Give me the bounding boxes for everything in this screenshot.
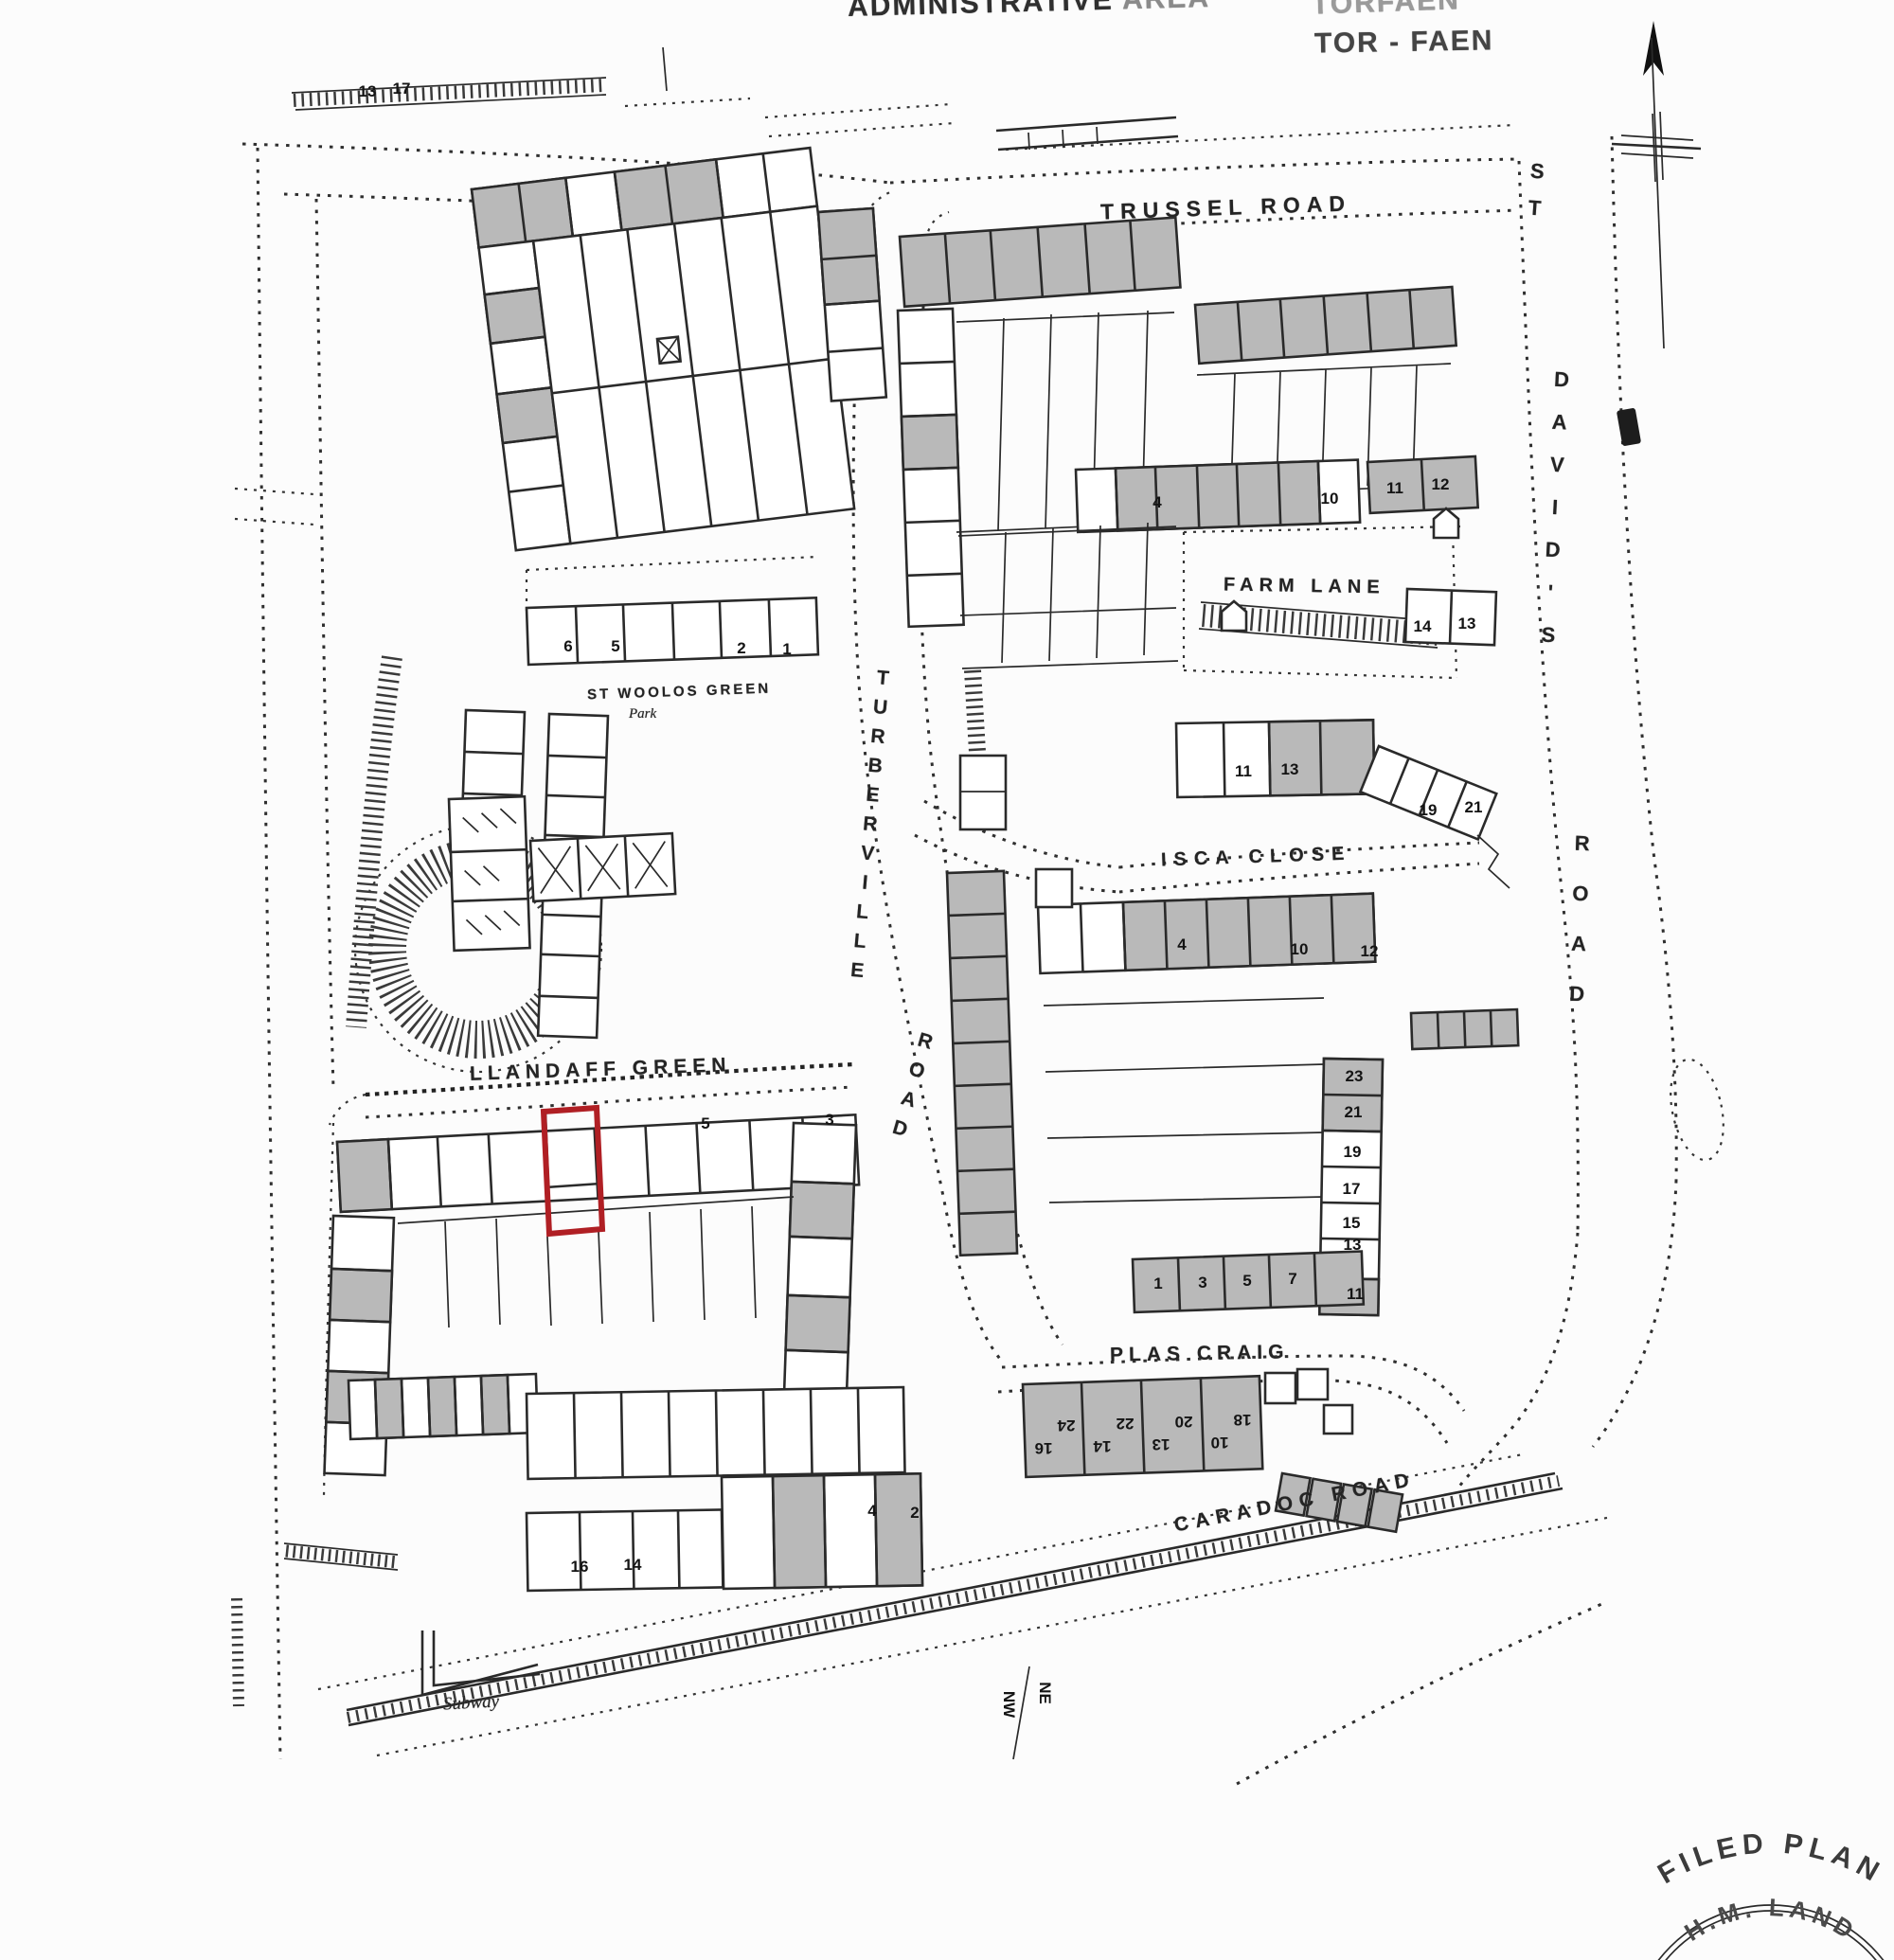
plot-number: 21 — [1345, 1103, 1363, 1121]
plot-number: 11 — [1235, 762, 1252, 780]
county-name-welsh-bottom: TOR - FAEN — [1314, 25, 1494, 60]
plot-number: 5 — [1242, 1272, 1251, 1290]
plot-number: 13 — [359, 82, 377, 100]
marker-ne: NE — [1036, 1682, 1054, 1704]
label-st-davids-1: ST — [1520, 158, 1549, 234]
plot-number: 19 — [1344, 1143, 1362, 1161]
house-icon — [1434, 508, 1458, 538]
plot-number: 13 — [1281, 760, 1299, 778]
label-park: Park — [629, 706, 656, 722]
ring-centre-block — [449, 796, 530, 951]
plot-number: 24 — [1057, 1417, 1075, 1434]
plot-number: 23 — [1346, 1067, 1364, 1085]
stamp-hm-land: H.M. LAND — [1679, 1893, 1862, 1947]
plot-number: 13 — [1152, 1435, 1170, 1453]
plot-number: 12 — [1432, 475, 1450, 493]
plot-number: 3 — [1198, 1274, 1206, 1292]
plot-number: 4 — [1177, 935, 1187, 953]
plot-number: 2 — [910, 1504, 919, 1522]
plot-number: 11 — [1347, 1285, 1364, 1303]
plot-number: 16 — [1035, 1439, 1053, 1457]
llandaff-right-col — [784, 1123, 856, 1409]
turberville-strip — [947, 871, 1017, 1256]
plot-number: 10 — [1211, 1434, 1229, 1452]
sheet-edge-marker: NE NW — [1000, 1666, 1054, 1759]
label-plas-craig: PLAS CRAIG — [1110, 1341, 1290, 1366]
plot-number: 14 — [624, 1556, 642, 1574]
plot-number: 17 — [1343, 1180, 1361, 1198]
plot-number: 11 — [1386, 479, 1403, 497]
garage-cluster — [530, 833, 675, 901]
plot-number: 16 — [571, 1558, 589, 1576]
plot-number: 10 — [1291, 940, 1309, 958]
label-farm-lane: FARM LANE — [1224, 575, 1385, 599]
plot-number: 1 — [782, 640, 791, 658]
stamp-filed-plan: FILED PLAN — [1653, 1827, 1889, 1890]
plot-number: 20 — [1175, 1413, 1193, 1431]
plot-number: 4 — [867, 1502, 877, 1520]
terrace-blocks — [325, 148, 1642, 1695]
plot-number: 5 — [611, 637, 619, 655]
north-arrow-icon — [1612, 21, 1701, 348]
plot-number: 6 — [563, 637, 572, 655]
plot-number: 12 — [1361, 942, 1379, 960]
plot-number: 18 — [1234, 1411, 1252, 1429]
plot-number: 19 — [1420, 801, 1438, 819]
small-structure — [657, 337, 681, 364]
building-solid — [1617, 408, 1641, 447]
plot-number: 10 — [1321, 490, 1339, 508]
plot-number: 22 — [1117, 1415, 1135, 1433]
plot-number: 15 — [1343, 1214, 1361, 1232]
plot-number: 17 — [393, 80, 411, 98]
plot-number: 4 — [1152, 493, 1162, 511]
map-canvas: NE NW FILED PLAN H.M. LAND 1317652141011… — [0, 0, 1894, 1960]
plot-number: 1 — [1153, 1274, 1162, 1292]
filed-plan-scan: { "header": { "administrative_area_word1… — [0, 0, 1894, 1960]
plot-number: 3 — [825, 1111, 833, 1129]
plot-number: 5 — [701, 1114, 709, 1132]
plot-number: 14 — [1093, 1437, 1111, 1455]
label-subway: Subway — [442, 1691, 499, 1715]
plot-number: 21 — [1465, 798, 1483, 816]
stamp: FILED PLAN H.M. LAND — [1629, 1827, 1894, 1960]
plot-number: 13 — [1458, 615, 1476, 633]
garage-row — [348, 1374, 538, 1439]
plot-number: 2 — [737, 639, 745, 657]
admin-area-word2: AREA — [1122, 0, 1211, 15]
plot-number: 14 — [1414, 617, 1432, 635]
strip-east — [818, 208, 886, 401]
marker-nw: NW — [1000, 1691, 1018, 1719]
plot-number: 7 — [1288, 1270, 1296, 1288]
plot-number: 13 — [1344, 1236, 1362, 1254]
